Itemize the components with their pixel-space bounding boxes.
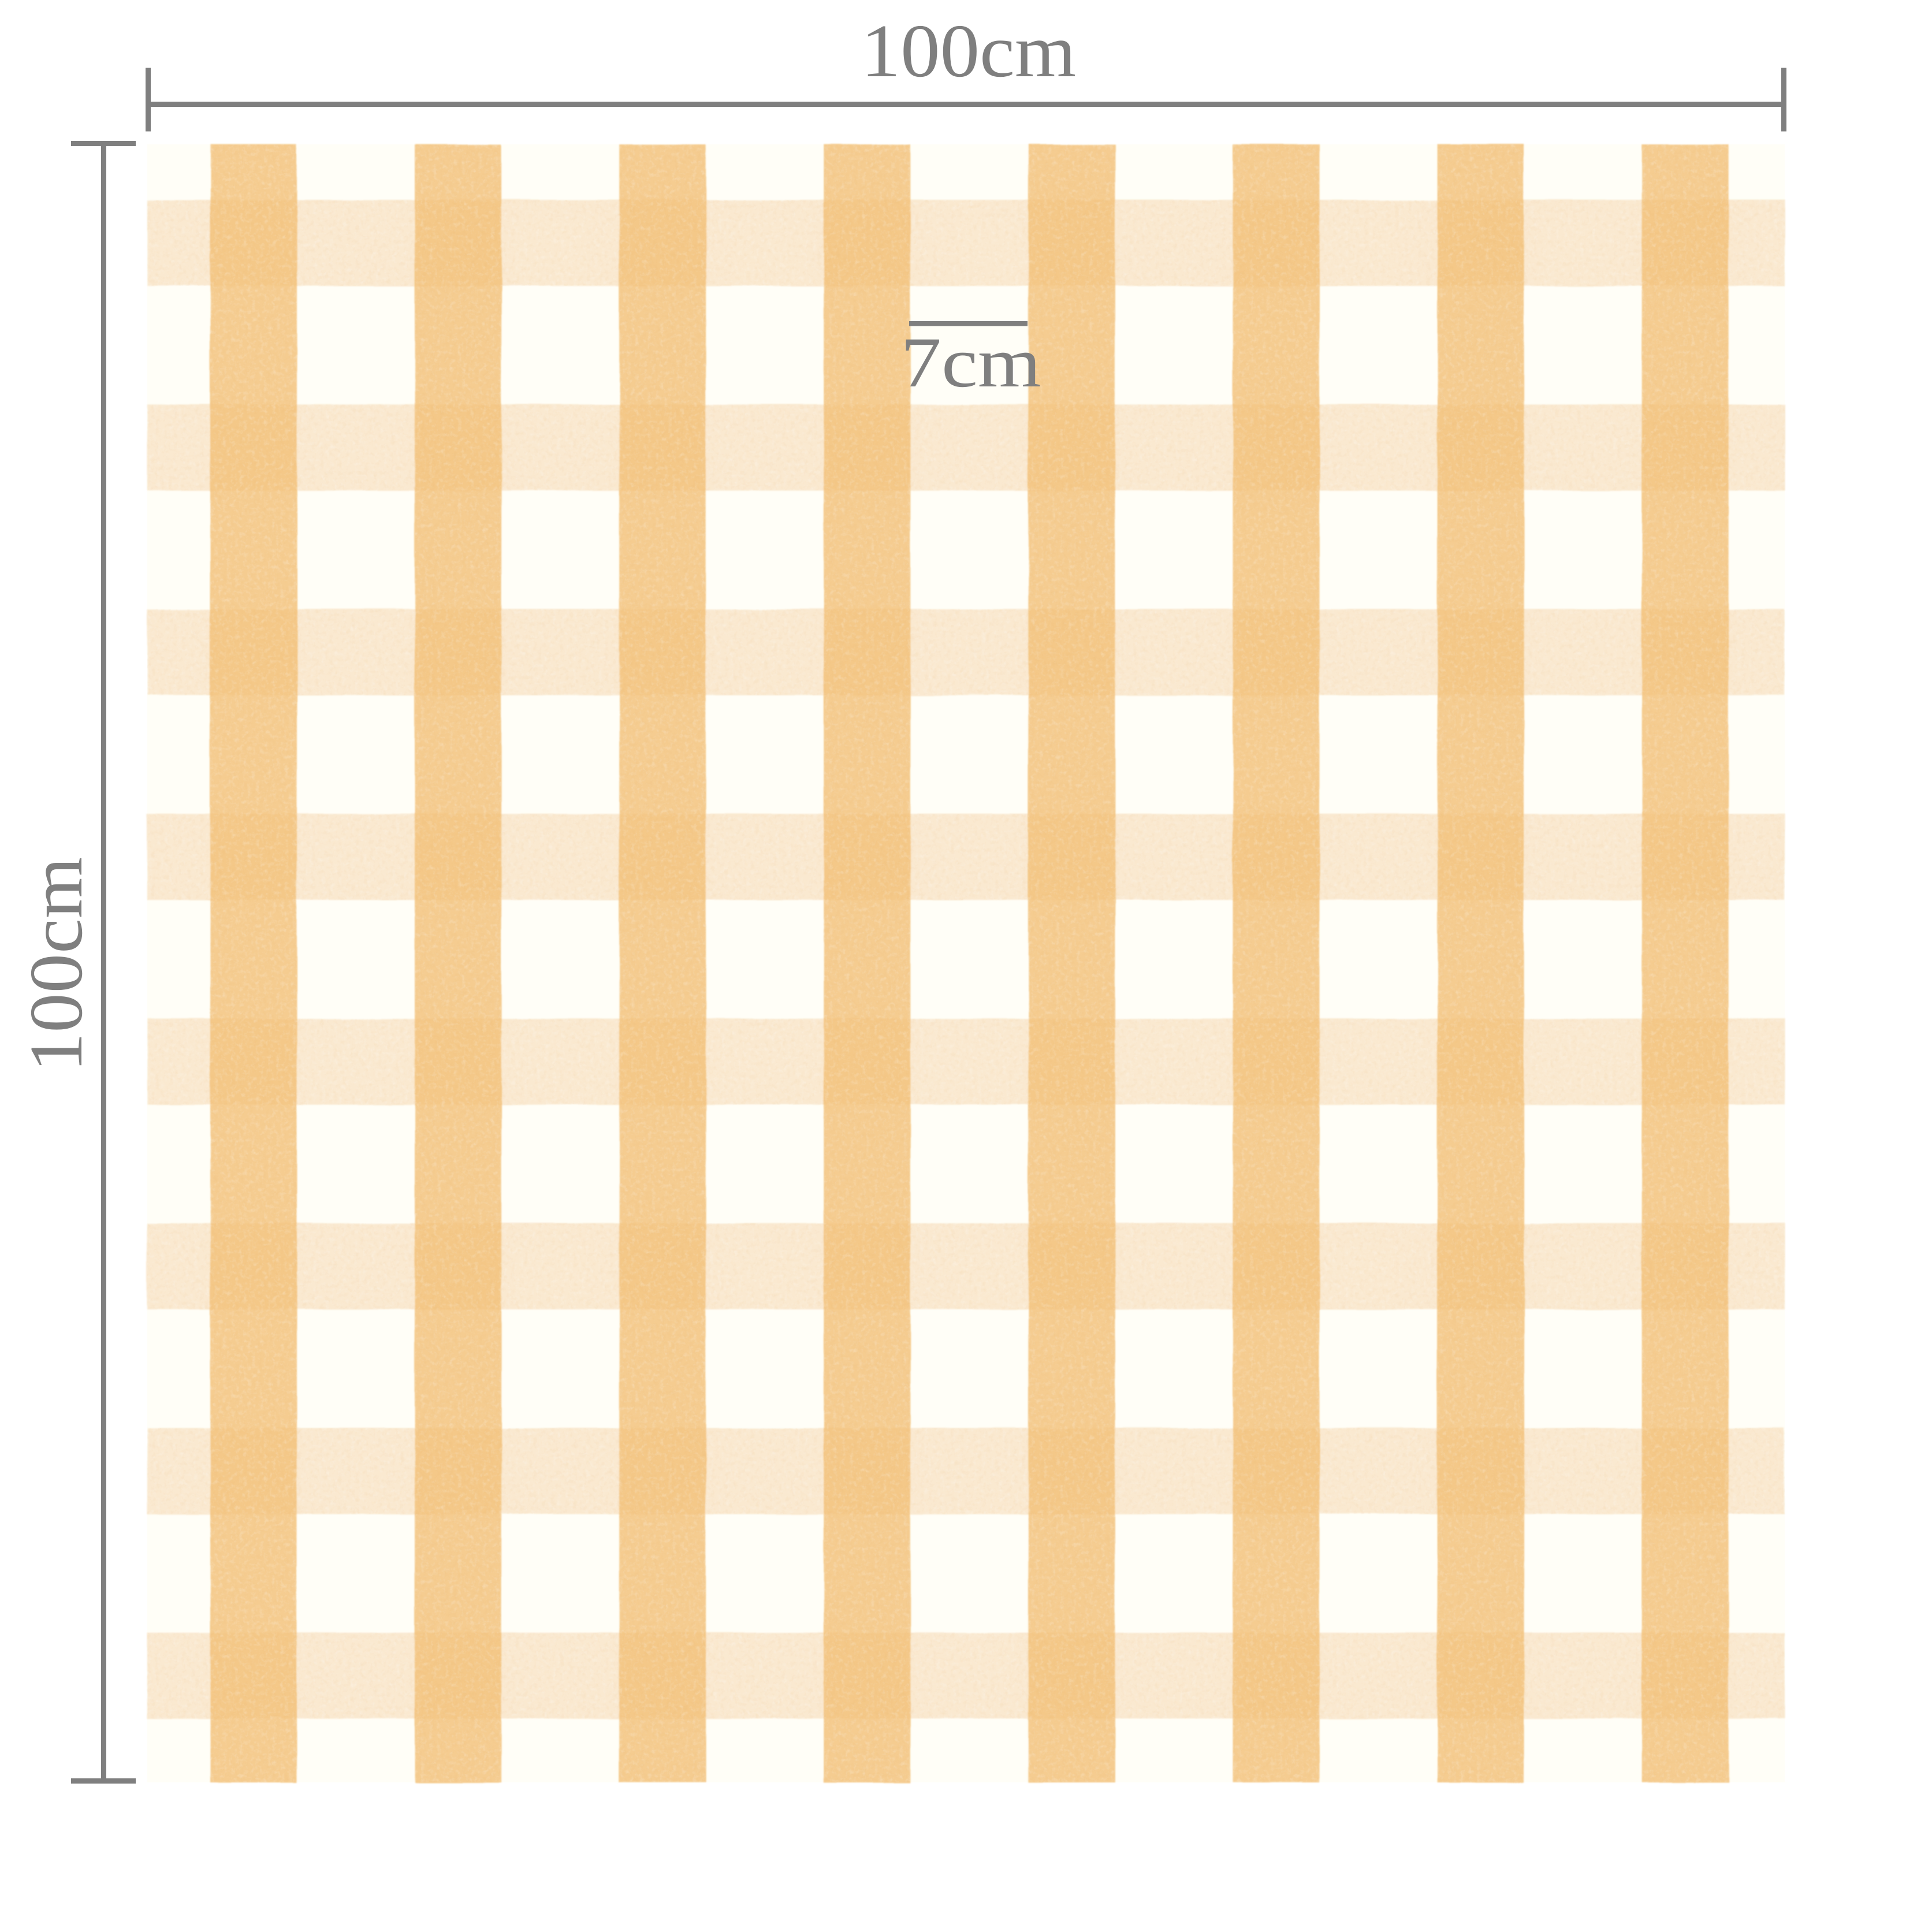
svg-text:7cm: 7cm (900, 323, 1041, 402)
svg-text:100cm: 100cm (14, 857, 98, 1073)
svg-text:100cm: 100cm (861, 9, 1077, 93)
